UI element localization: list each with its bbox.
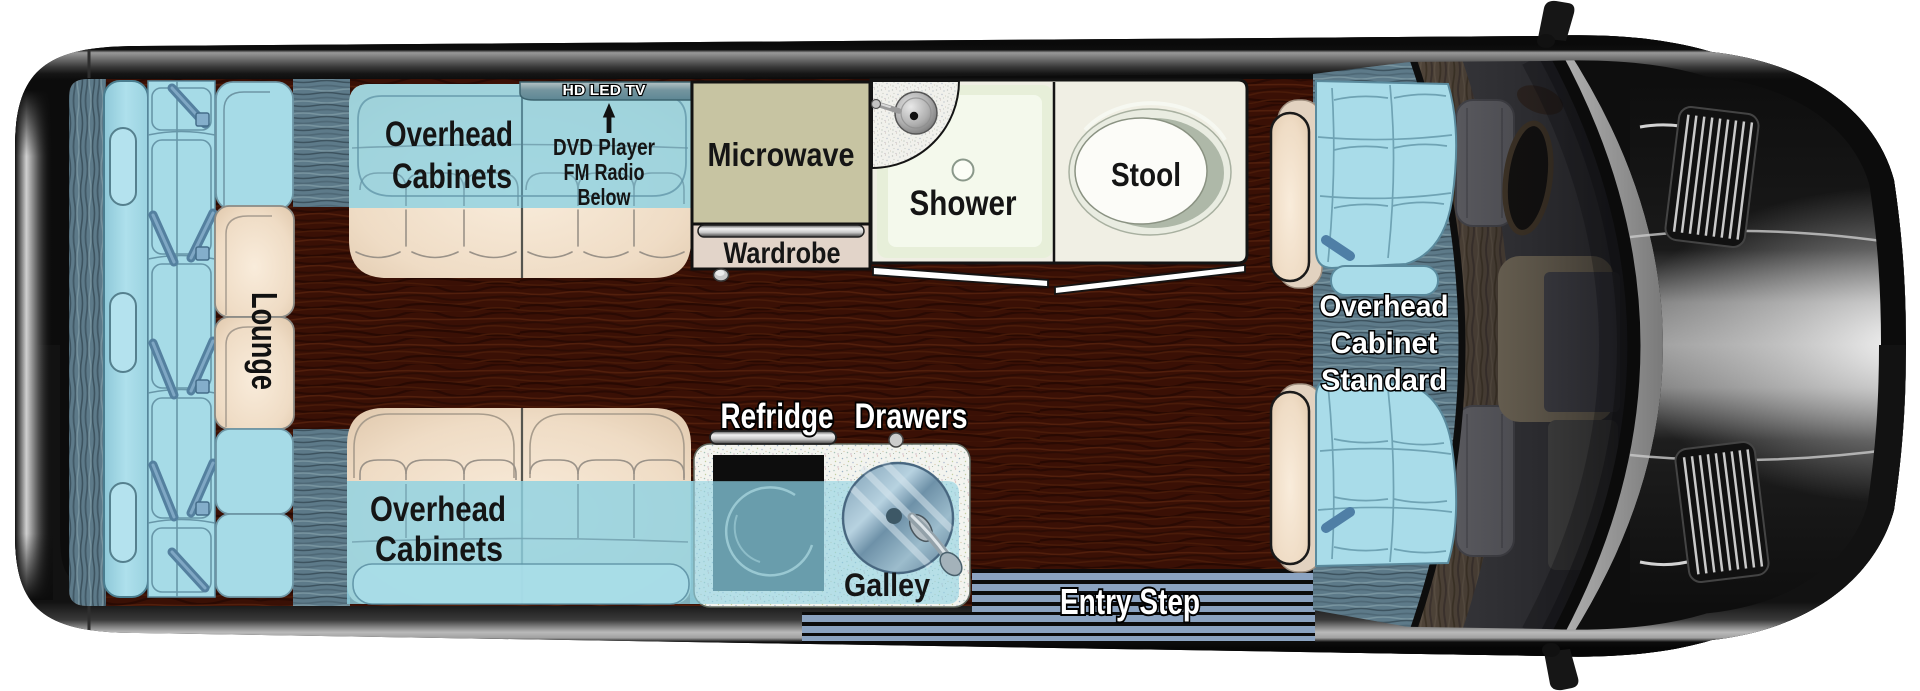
svg-text:DVD Player: DVD Player xyxy=(553,134,655,160)
svg-text:Cabinet: Cabinet xyxy=(1331,327,1438,360)
svg-text:HD LED TV: HD LED TV xyxy=(563,83,646,99)
svg-text:Wardrobe: Wardrobe xyxy=(724,237,841,270)
svg-text:Galley: Galley xyxy=(844,567,930,603)
svg-text:Shower: Shower xyxy=(910,184,1017,223)
svg-text:FM Radio: FM Radio xyxy=(564,159,645,185)
svg-text:Stool: Stool xyxy=(1111,156,1181,193)
svg-text:Cabinets: Cabinets xyxy=(375,530,503,569)
svg-text:Overhead: Overhead xyxy=(385,115,513,154)
svg-text:Standard: Standard xyxy=(1321,364,1447,397)
svg-text:Lounge: Lounge xyxy=(244,292,285,390)
svg-text:Refridge: Refridge xyxy=(721,397,834,436)
svg-text:Cabinets: Cabinets xyxy=(392,157,512,196)
svg-text:Microwave: Microwave xyxy=(708,136,855,173)
svg-text:Below: Below xyxy=(578,184,631,210)
svg-text:Overhead: Overhead xyxy=(1320,290,1449,323)
svg-text:Entry Step: Entry Step xyxy=(1060,581,1200,622)
svg-text:Overhead: Overhead xyxy=(370,490,506,529)
svg-text:Drawers: Drawers xyxy=(855,397,968,436)
